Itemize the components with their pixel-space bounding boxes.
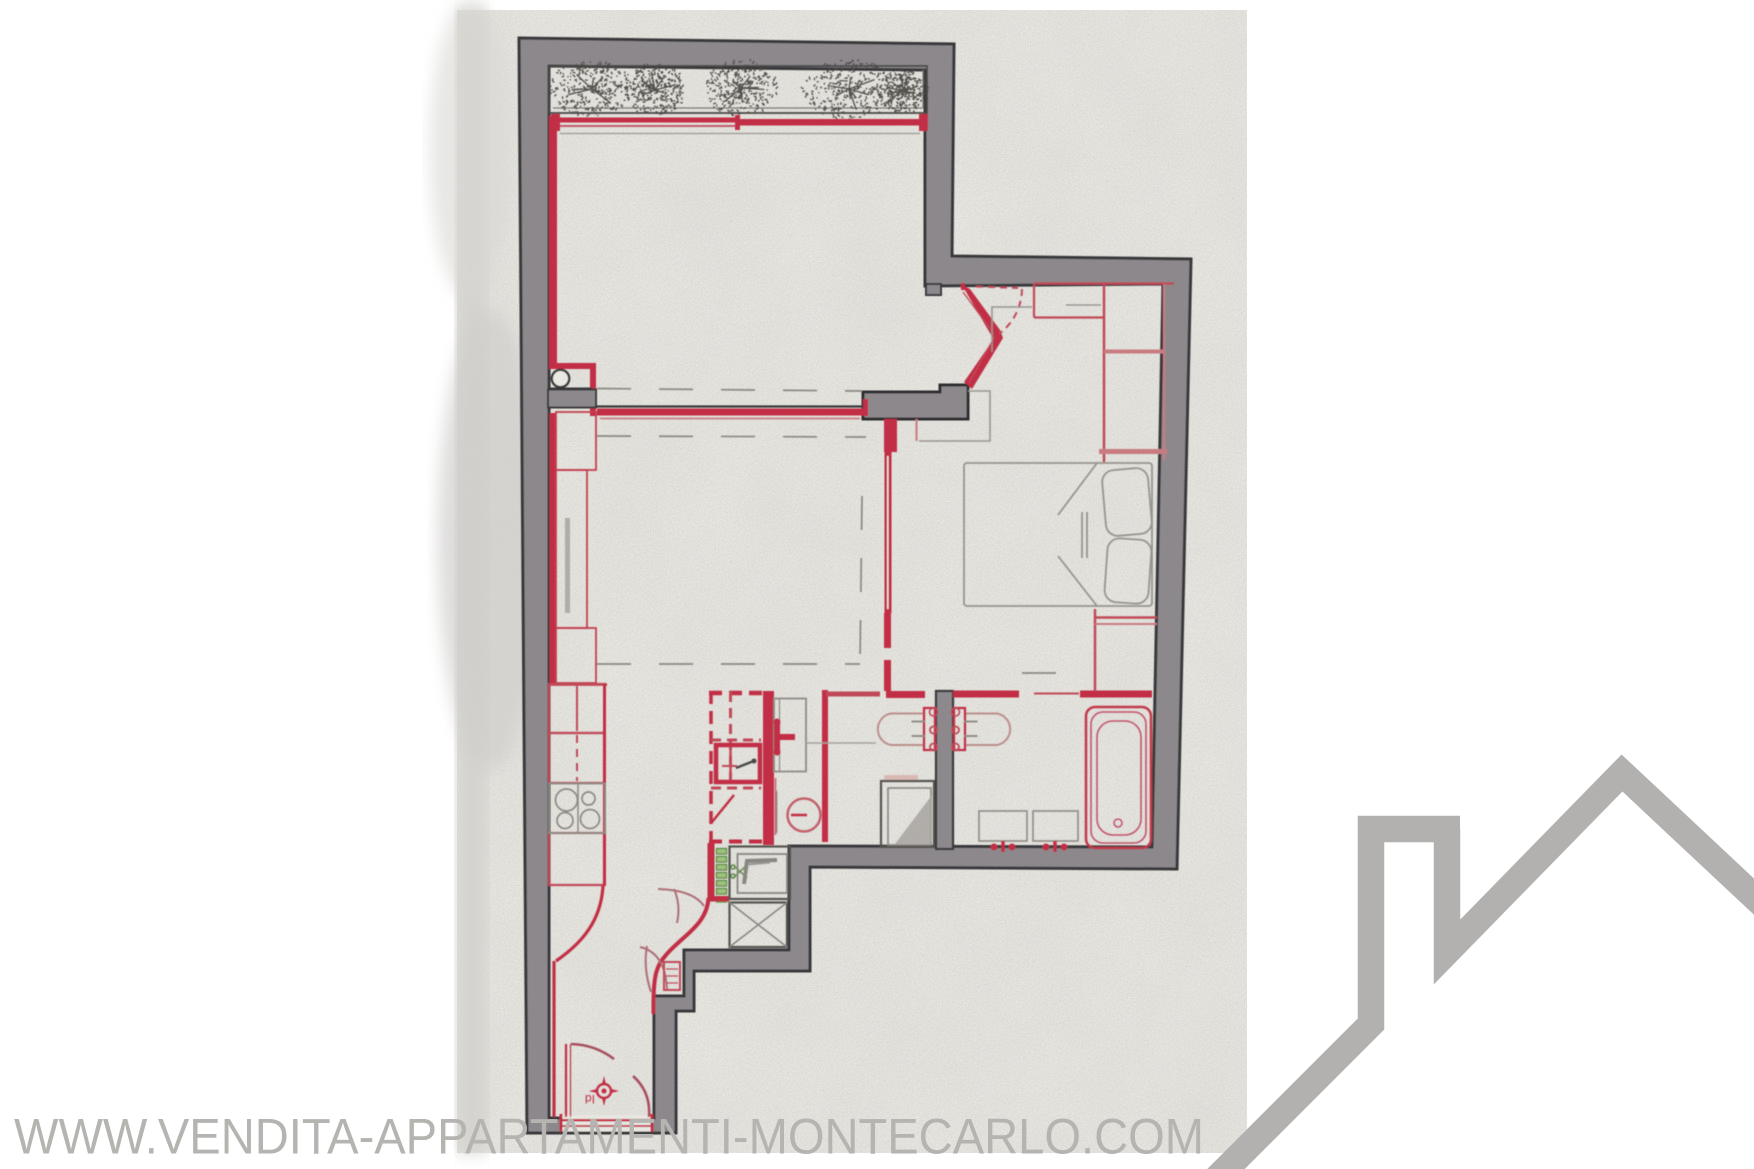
svg-text:Id: Id [585,1092,595,1106]
svg-text:WWW.VENDITA-APPARTAMENTI-MONTE: WWW.VENDITA-APPARTAMENTI-MONTECARLO.COM [14,1109,1204,1165]
